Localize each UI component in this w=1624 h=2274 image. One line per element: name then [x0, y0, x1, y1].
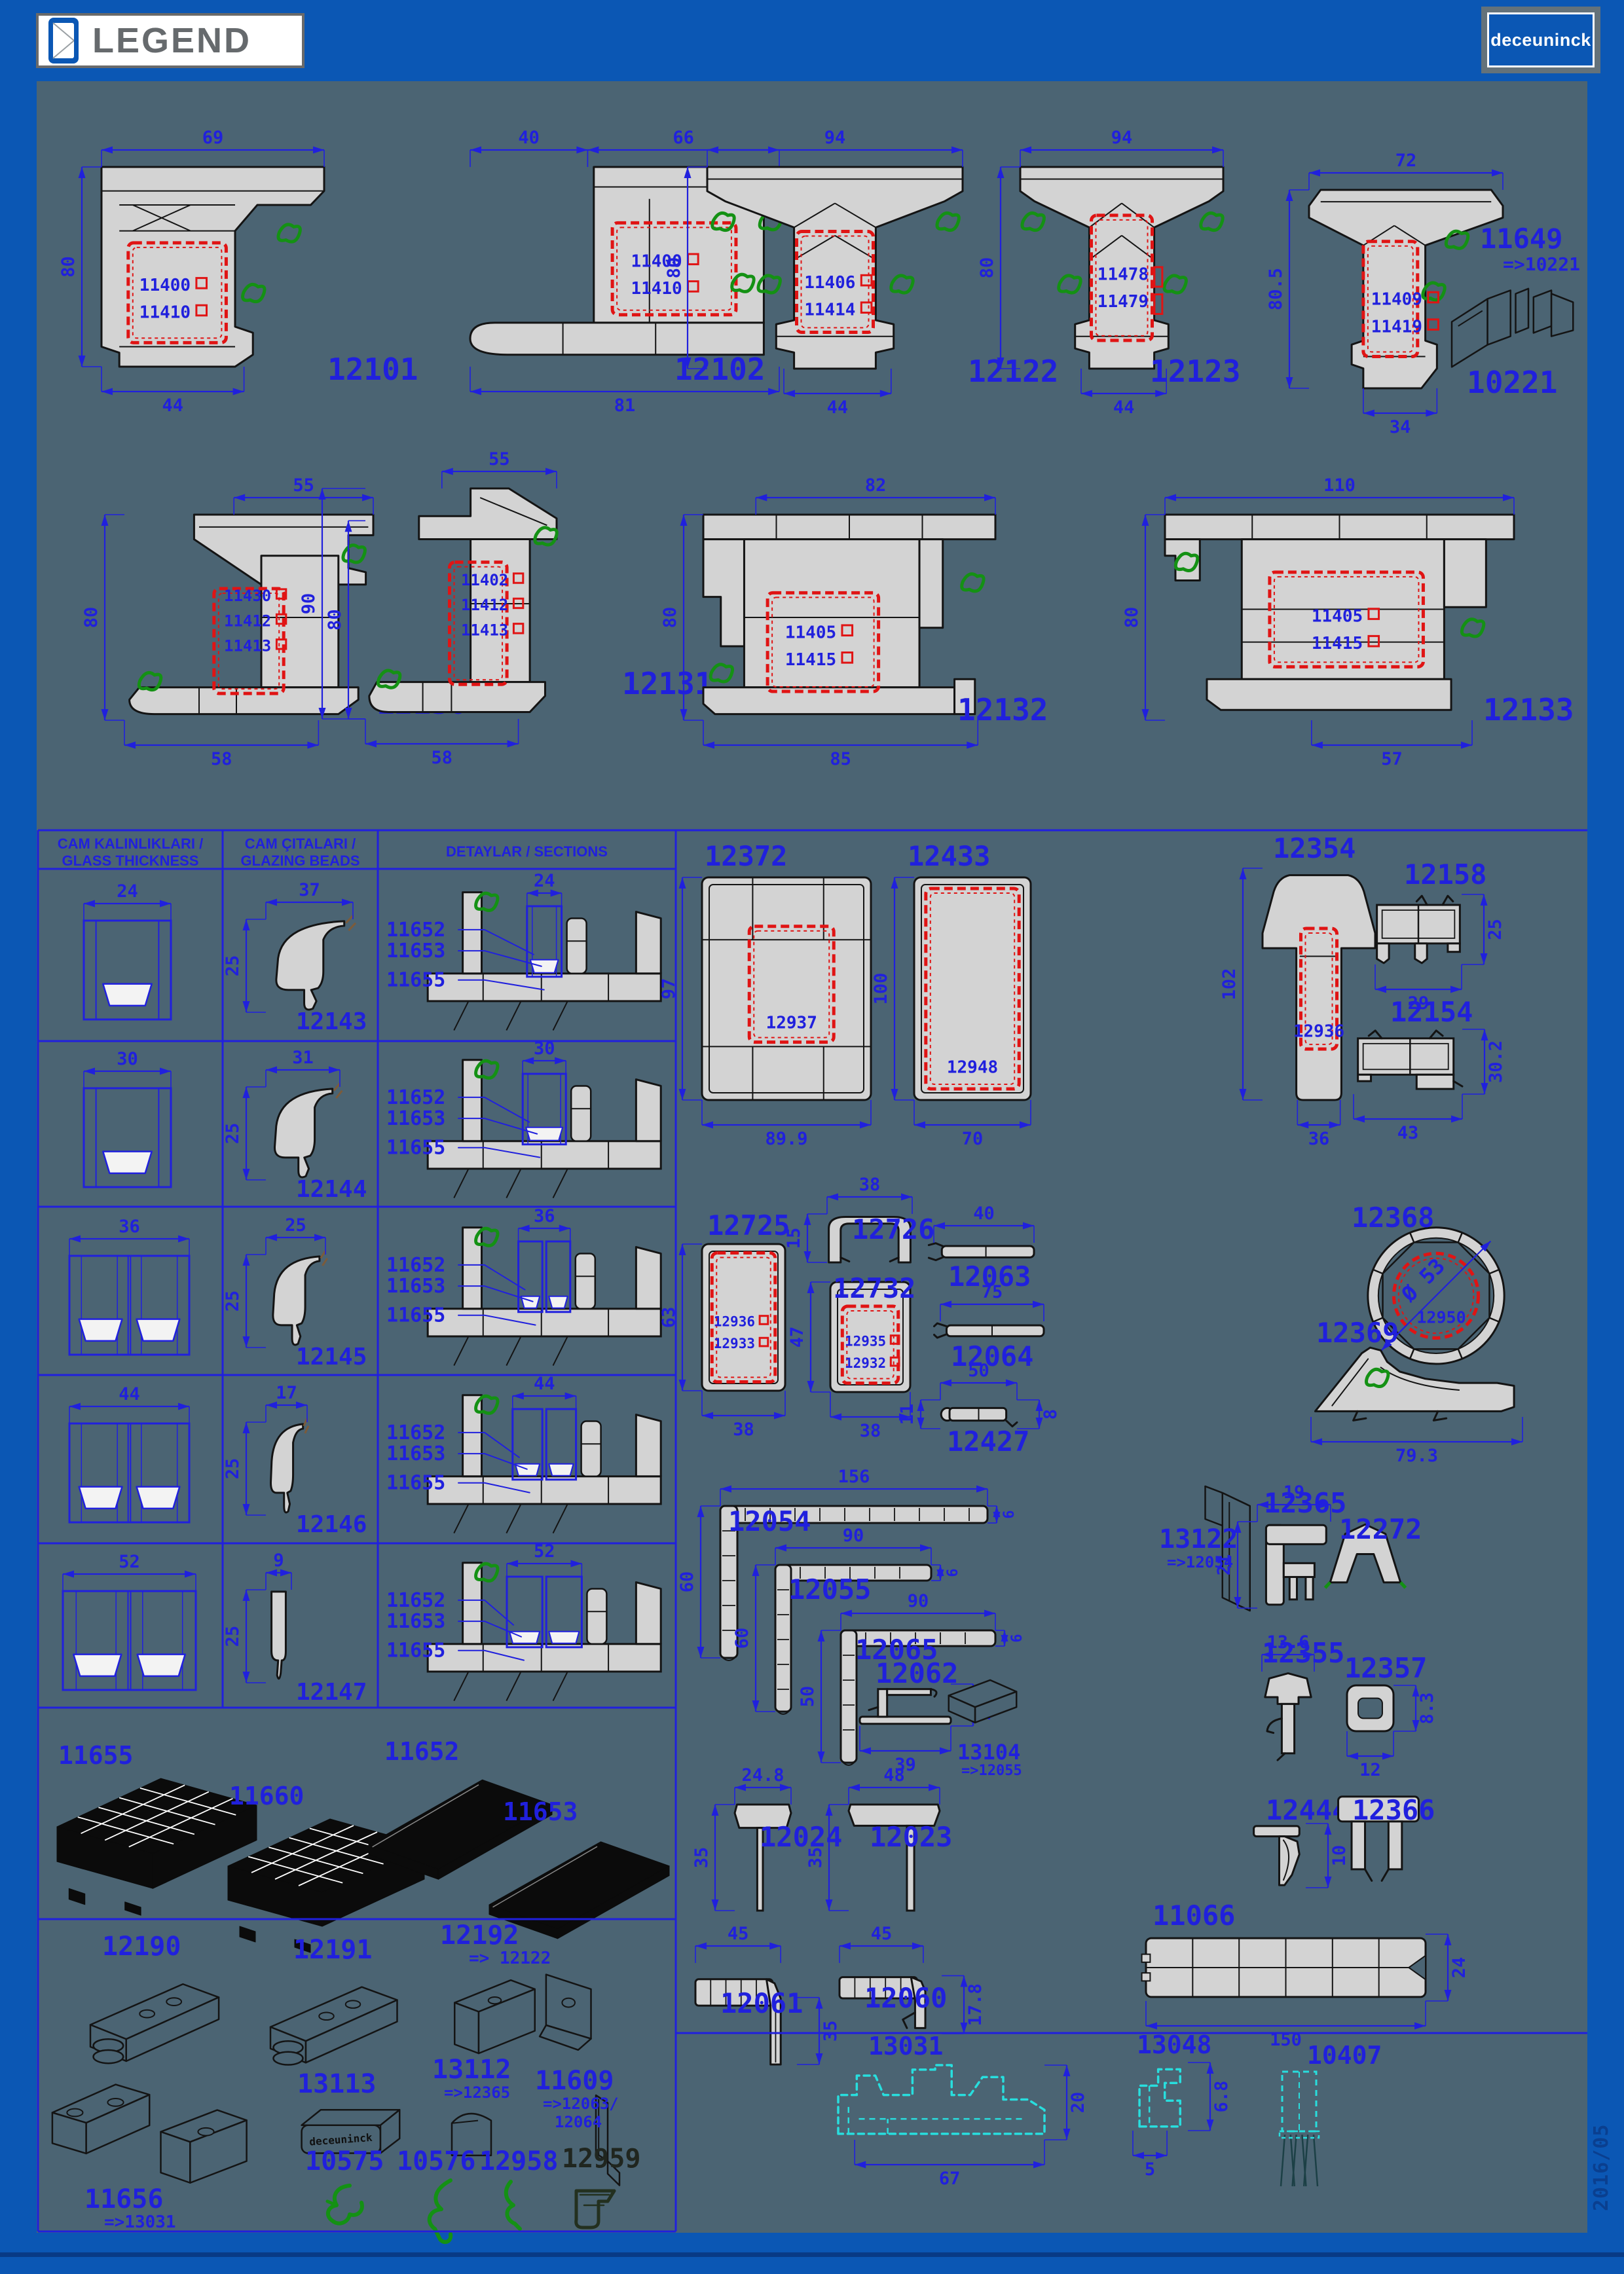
- drawing-d44: 44116521165311655: [381, 1379, 673, 1541]
- dim-value: 30: [534, 1038, 555, 1059]
- drawing-12024: 24.83512024: [705, 1774, 822, 1920]
- dim-value: 44: [119, 1384, 140, 1404]
- dim-value: 94: [1111, 128, 1133, 148]
- dim-value: 60: [677, 1571, 697, 1593]
- detail-ref: 11652: [386, 1086, 445, 1109]
- dim-value: 90: [299, 593, 319, 615]
- deceuninck-logo: deceuninck: [1481, 7, 1600, 73]
- part-number: 10575: [305, 2146, 384, 2176]
- dim-value: 48: [883, 1765, 905, 1786]
- dim-value: 80: [977, 257, 997, 279]
- dim-value: 30.2: [1486, 1040, 1506, 1083]
- reinforcement-ref: 12937: [766, 1013, 817, 1033]
- dim-value: 34: [1390, 417, 1411, 437]
- drawing-12101: 114001141069804412101: [62, 128, 465, 419]
- dim-value: 21: [1214, 1554, 1234, 1576]
- drawing-12063: 4012063: [915, 1211, 1043, 1291]
- part-reference: => 12122: [469, 1949, 551, 1968]
- drawing-d30: 30116521165311655: [381, 1044, 673, 1206]
- part-reference: =>12063/: [543, 2095, 619, 2113]
- dim-value: 30: [117, 1049, 138, 1069]
- dim-value: 17: [276, 1383, 297, 1403]
- reinforcement-ref: 11414: [804, 300, 855, 320]
- dim-value: 50: [968, 1361, 989, 1381]
- part-number: 13122: [1159, 1524, 1238, 1554]
- dim-value: 94: [824, 128, 846, 148]
- drawing-12023: 483512023: [819, 1774, 946, 1920]
- dim-value: 44: [1113, 397, 1135, 418]
- part-number: 12144: [296, 1176, 367, 1203]
- dim-value: 80: [1122, 607, 1142, 629]
- detail-ref: 11653: [386, 1610, 445, 1633]
- dim-value: 11: [897, 1404, 917, 1425]
- drawing-12158: 252912158: [1367, 862, 1498, 1002]
- detail-ref: 11653: [386, 1442, 445, 1465]
- dim-value: 35: [805, 1847, 826, 1869]
- dim-value: 102: [1219, 968, 1240, 1000]
- reinforcement-ref: 12935: [845, 1333, 886, 1349]
- dim-value: 24.8: [741, 1765, 784, 1786]
- drawing-g30: 30: [77, 1053, 179, 1194]
- dim-value: 44: [534, 1374, 555, 1394]
- part-number: 11653: [503, 1797, 578, 1826]
- part-number: 12143: [296, 1008, 367, 1035]
- window-icon: [48, 17, 82, 64]
- part-number: 12725: [707, 1209, 790, 1241]
- reinforcement-ref: 11430: [224, 587, 271, 605]
- dim-value: 47: [787, 1327, 807, 1348]
- drawing-12726: 381512726: [796, 1185, 920, 1269]
- reinforcement-ref: 11419: [1371, 317, 1422, 337]
- legend-logo: LEGEND: [36, 13, 304, 68]
- detail-ref: 11653: [386, 940, 445, 963]
- dim-value: 6: [945, 1568, 961, 1577]
- drawing-12146: 172512146: [231, 1387, 365, 1537]
- dim-value: 24: [534, 871, 555, 891]
- drawing-13048: 6.8513048: [1115, 2023, 1226, 2166]
- dim-value: 100: [871, 973, 891, 1005]
- deceuninck-wordmark: deceuninck: [1490, 30, 1591, 50]
- drawing-d52: 52116521165311655: [381, 1547, 673, 1709]
- dim-value: 44: [162, 395, 184, 416]
- detail-ref: 11655: [386, 1472, 445, 1495]
- drawing-12133: 1140511415110805712133: [1116, 466, 1598, 779]
- footer-stripe: [0, 2252, 1624, 2257]
- dim-value: 81: [614, 395, 636, 416]
- part-number: 13113: [297, 2069, 376, 2099]
- detail-ref: 11655: [386, 969, 445, 992]
- drawing-12725: 1293612933633812725: [669, 1211, 797, 1433]
- part-number: 12732: [833, 1272, 915, 1304]
- reinforcement-ref: 11479: [1098, 292, 1149, 312]
- reinforcement-ref: 11400: [139, 276, 191, 295]
- part-number: 12123: [1150, 354, 1240, 389]
- dim-value: 20: [1068, 2092, 1088, 2114]
- dim-value: 25: [285, 1215, 306, 1236]
- dim-value: 6: [1009, 1634, 1025, 1642]
- drawing-12154: 30.24312154: [1346, 1000, 1503, 1130]
- part-number: 12133: [1483, 692, 1574, 727]
- dim-value: 90: [908, 1591, 929, 1611]
- part-number: 10407: [1307, 2041, 1382, 2070]
- dim-value: 110: [1323, 475, 1356, 496]
- drawing-g36: 36: [63, 1220, 197, 1361]
- drawing-12427: 5011812427: [912, 1370, 1046, 1456]
- dim-value: 40: [973, 1203, 995, 1224]
- part-number: 12190: [102, 1932, 181, 1962]
- part-number: 12061: [720, 1987, 803, 2019]
- part-number: 12369: [1316, 1317, 1399, 1349]
- drawing-12959: 12959: [558, 2145, 642, 2242]
- reinforcement-ref: 11413: [461, 621, 508, 640]
- reinforcement-ref: 11406: [804, 273, 855, 293]
- dim-value: 79.3: [1395, 1446, 1438, 1466]
- dim-value: 50: [798, 1686, 818, 1708]
- dim-value: 25: [223, 1123, 243, 1145]
- part-number: 11609: [535, 2066, 614, 2096]
- dim-value: 25: [223, 1626, 243, 1647]
- drawing-d36: 36116521165311655: [381, 1211, 673, 1374]
- dim-value: 156: [838, 1467, 870, 1487]
- dim-value: 85: [830, 749, 851, 769]
- part-number: 12060: [864, 1982, 947, 2014]
- drawing-12144: 312512144: [231, 1052, 365, 1202]
- drawing-12357: 8.31212357: [1326, 1657, 1428, 1760]
- dim-value: 80: [325, 609, 345, 631]
- dim-value: 24: [1449, 1957, 1469, 1979]
- reinforcement-ref: 11478: [1098, 265, 1149, 284]
- drawing-12433: 129481007012433: [883, 842, 1039, 1142]
- dim-value: 25: [223, 1291, 243, 1312]
- drawing-12123: 114781147994804412123: [981, 128, 1269, 422]
- drawing-11066: 1502411066: [1137, 1896, 1454, 2034]
- dim-value: 60: [732, 1628, 752, 1649]
- col-header-glazing-beads: CAM ÇITALARI /GLAZING BEADS: [223, 835, 378, 870]
- part-number: 11656: [84, 2184, 163, 2214]
- dim-value: 31: [292, 1048, 314, 1068]
- dim-value: 38: [859, 1175, 881, 1195]
- part-number: 12158: [1404, 858, 1486, 890]
- part-number: 12147: [296, 1679, 367, 1706]
- drawing-13031: 206713031: [820, 2023, 1079, 2175]
- part-number: 12365: [1264, 1487, 1346, 1519]
- part-number: 12433: [908, 840, 990, 872]
- part-number: 12372: [705, 840, 787, 872]
- detail-ref: 11655: [386, 1137, 445, 1160]
- part-number: 13104: [957, 1740, 1020, 1765]
- brand-name: LEGEND: [92, 20, 251, 61]
- dim-value: 38: [733, 1420, 754, 1440]
- drawing-12369: 79.312369: [1303, 1317, 1532, 1455]
- dim-value: 36: [534, 1206, 555, 1226]
- dim-value: 17.8: [965, 1983, 986, 2026]
- dim-value: 80: [660, 607, 680, 629]
- part-number: 12132: [957, 692, 1048, 727]
- dim-value: 25: [223, 955, 243, 977]
- dim-value: 58: [211, 749, 232, 769]
- dim-value: 44: [827, 397, 849, 418]
- part-number: 12427: [947, 1425, 1029, 1458]
- reinforcement-ref: 11405: [785, 623, 836, 642]
- dim-value: 67: [939, 2169, 961, 2189]
- detail-ref: 11652: [386, 1421, 445, 1444]
- part-number: 12272: [1339, 1513, 1422, 1545]
- dim-value: 89.9: [765, 1129, 807, 1149]
- drawing-12143: 372512143: [231, 884, 365, 1035]
- dim-value: 72: [1395, 151, 1417, 171]
- detail-ref: 11653: [386, 1275, 445, 1298]
- dim-value: 5: [1145, 2159, 1155, 2180]
- reinforcement-ref: 11412: [224, 612, 271, 630]
- part-number: 12357: [1344, 1652, 1427, 1684]
- part-number: 11655: [58, 1741, 133, 1770]
- dim-value: 90: [843, 1526, 864, 1546]
- drawing-g52: 52: [56, 1556, 204, 1696]
- drawing-12444: 1012444: [1241, 1791, 1342, 1901]
- drawing-12958: 12958: [477, 2148, 555, 2241]
- catalog-page: LEGEND deceuninck CAM KALINLIKLARI /GLAS…: [0, 0, 1624, 2274]
- detail-ref: 11653: [386, 1107, 445, 1130]
- part-number: 12191: [293, 1935, 372, 1965]
- part-number: 12958: [479, 2146, 558, 2176]
- part-number: 12064: [951, 1340, 1033, 1372]
- drawing-d24: 24116521165311655: [381, 876, 673, 1038]
- reinforcement-ref: 12936: [1293, 1022, 1344, 1042]
- reinforcement-ref: 12933: [714, 1336, 755, 1351]
- dim-value: 55: [489, 449, 510, 469]
- drawing-g24: 24: [77, 885, 179, 1026]
- dim-value: 38: [860, 1421, 881, 1441]
- part-number: 11660: [229, 1782, 304, 1810]
- detail-ref: 11652: [386, 1589, 445, 1612]
- part-number: 12959: [562, 2144, 640, 2174]
- dim-value: 80: [81, 607, 101, 629]
- dim-value: 36: [1308, 1129, 1330, 1149]
- reinforcement-ref: 12948: [947, 1058, 998, 1078]
- drawing-12064: 7512064: [922, 1290, 1053, 1371]
- dim-value: 45: [871, 1924, 893, 1944]
- reinforcement-ref: 11415: [1312, 634, 1363, 653]
- detail-ref: 11655: [386, 1640, 445, 1662]
- drawing-12372: 129379789.912372: [669, 842, 880, 1142]
- dim-value: 6: [1001, 1510, 1018, 1518]
- dim-value: 36: [119, 1217, 140, 1237]
- drawing-10576: 10576: [394, 2148, 478, 2245]
- detail-ref: 11652: [386, 1254, 445, 1277]
- part-number: 12366: [1352, 1794, 1435, 1826]
- drawing-12366: 12366: [1333, 1791, 1424, 1894]
- drawing-11656: 11656=>13031: [43, 2068, 280, 2233]
- reinforcement-ref: 11405: [1312, 606, 1363, 626]
- dim-value: 52: [119, 1552, 140, 1572]
- drawing-12191: 12191: [261, 1935, 423, 2079]
- part-number: 12354: [1273, 832, 1356, 864]
- part-number: 11652: [384, 1737, 459, 1766]
- dim-value: 15: [784, 1228, 804, 1249]
- edition-label: 2016/05: [1590, 2118, 1617, 2216]
- reinforcement-ref: 11413: [224, 637, 271, 655]
- reinforcement-ref: 12932: [845, 1355, 886, 1371]
- dim-value: 40: [518, 128, 540, 148]
- drawing-11649: 11649=>10221: [1444, 226, 1588, 376]
- part-reference: 12064: [555, 2113, 602, 2131]
- reinforcement-ref: 11409: [1371, 290, 1422, 310]
- part-reference: =>12365: [444, 2083, 510, 2102]
- dim-value: 8: [1041, 1409, 1061, 1420]
- dim-value: 69: [202, 128, 224, 148]
- part-number: 11649: [1480, 223, 1562, 255]
- drawing-12061: 453512061: [688, 1933, 828, 2074]
- dim-value: 80.5: [1266, 268, 1286, 310]
- dim-value: 75: [982, 1282, 1003, 1302]
- drawing-12145: 252512145: [231, 1219, 365, 1370]
- drawing-12147: 92512147: [231, 1554, 365, 1705]
- part-number: 12192: [440, 1920, 519, 1951]
- reinforcement-ref: 11410: [139, 303, 191, 323]
- part-number: 10576: [397, 2146, 475, 2176]
- reinforcement-ref: 11415: [785, 650, 836, 670]
- dim-value: 70: [962, 1129, 984, 1149]
- dim-value: 8.3: [1417, 1693, 1437, 1725]
- part-number: 12101: [327, 352, 418, 387]
- drawing-12190: 12190: [84, 1933, 246, 2078]
- drawing-12272: 12272: [1319, 1516, 1411, 1592]
- dim-value: 9: [273, 1550, 284, 1571]
- drawing-13104: 13104=>12055: [935, 1666, 1030, 1781]
- drawing-10575: 10575: [303, 2148, 386, 2241]
- dim-value: 80: [664, 257, 684, 279]
- part-number: 13112: [432, 2055, 511, 2085]
- detail-ref: 11652: [386, 919, 445, 942]
- part-number: 12368: [1352, 1201, 1434, 1234]
- dim-value: 6.8: [1211, 2081, 1232, 2113]
- drawing-10407: 10407: [1265, 2031, 1393, 2191]
- col-header-sections: DETAYLAR / SECTIONS: [378, 843, 676, 860]
- dim-value: 43: [1397, 1123, 1419, 1143]
- dim-value: 97: [659, 978, 679, 1000]
- dim-value: 52: [534, 1541, 555, 1562]
- dim-value: 63: [659, 1307, 679, 1329]
- reinforcement-ref: 12936: [714, 1313, 755, 1329]
- dim-value: 12: [1359, 1760, 1381, 1780]
- part-number: 13031: [868, 2032, 943, 2061]
- dim-value: 80: [58, 256, 79, 278]
- col-header-glass-thickness: CAM KALINLIKLARI /GLASS THICKNESS: [38, 835, 223, 870]
- reinforcement-ref: 11402: [461, 571, 508, 589]
- detail-ref: 11655: [386, 1304, 445, 1327]
- drawing-g44: 44: [63, 1388, 197, 1529]
- dim-value: 24: [117, 881, 138, 902]
- drawing-12355: 13.612355: [1241, 1640, 1333, 1763]
- dim-value: 45: [728, 1924, 749, 1944]
- part-number: 12154: [1390, 996, 1473, 1028]
- dim-value: 37: [299, 880, 320, 900]
- part-number: 13048: [1137, 2030, 1211, 2059]
- dim-value: 82: [865, 475, 887, 496]
- drawing-12132: 114051141582808512132: [655, 466, 1120, 779]
- dim-value: 25: [1485, 919, 1505, 940]
- dim-value: 25: [223, 1458, 243, 1480]
- part-number: 12146: [296, 1511, 367, 1538]
- dim-value: 35: [692, 1847, 712, 1869]
- part-reference: =>12055: [961, 1763, 1022, 1779]
- part-number: 11066: [1153, 1899, 1235, 1932]
- dim-value: 58: [432, 748, 453, 768]
- part-number: 12023: [870, 1821, 952, 1853]
- reinforcement-ref: 11412: [461, 596, 508, 614]
- part-reference: =>13031: [104, 2212, 176, 2232]
- part-reference: =>10221: [1503, 253, 1580, 275]
- part-number: 12145: [296, 1344, 367, 1370]
- dim-value: 57: [1381, 749, 1403, 769]
